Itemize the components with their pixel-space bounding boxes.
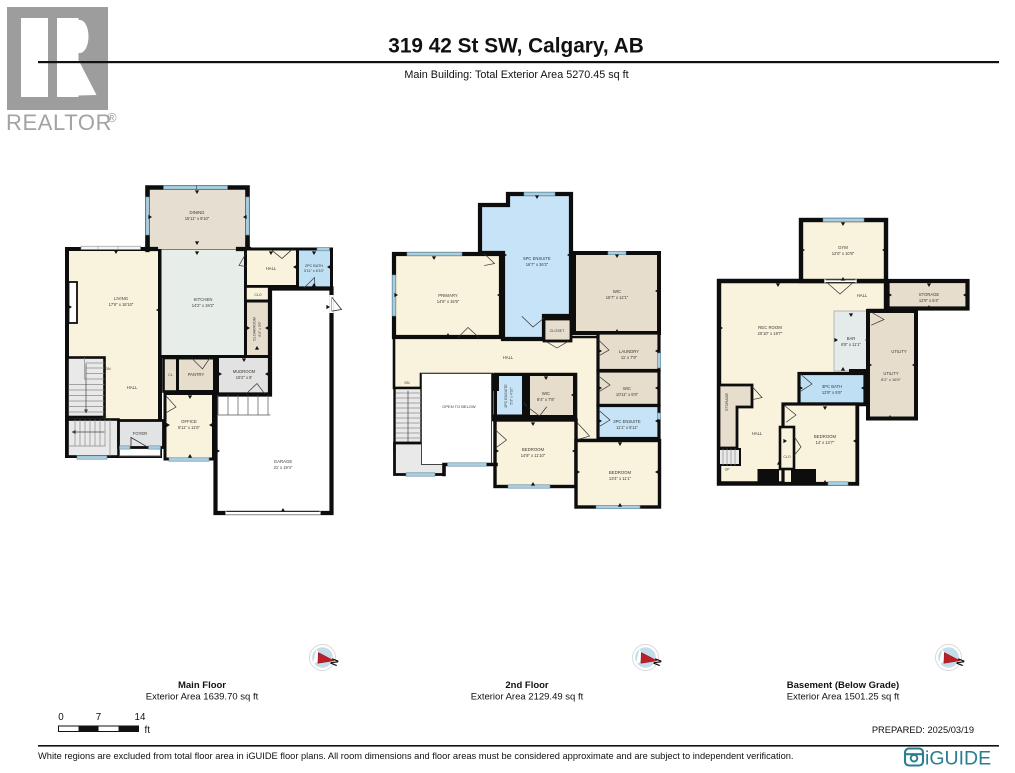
svg-text:STORAGE: STORAGE	[919, 292, 940, 297]
svg-text:DN: DN	[105, 367, 111, 371]
svg-text:8'2" x 16'9": 8'2" x 16'9"	[881, 377, 901, 382]
svg-text:10'11" x 5'9": 10'11" x 5'9"	[616, 392, 639, 397]
svg-text:HALL: HALL	[266, 266, 277, 271]
svg-text:5'3" x 4'10": 5'3" x 4'10"	[510, 387, 514, 405]
svg-text:5'11" x 6'10": 5'11" x 6'10"	[304, 269, 325, 273]
svg-text:DINING: DINING	[189, 210, 205, 215]
svg-text:14'9" x 11'10": 14'9" x 11'10"	[521, 453, 546, 458]
svg-text:12'9" x 5'4": 12'9" x 5'4"	[919, 298, 940, 303]
svg-text:10'2" x 8': 10'2" x 8'	[236, 375, 253, 380]
svg-text:14: 14	[135, 712, 146, 723]
svg-text:7: 7	[96, 712, 101, 723]
svg-text:iGUIDE: iGUIDE	[925, 748, 991, 769]
svg-text:17'6" x 18'10": 17'6" x 18'10"	[109, 302, 134, 307]
svg-text:STORAGE: STORAGE	[725, 392, 729, 411]
svg-text:OFFICE: OFFICE	[181, 419, 197, 424]
svg-text:12'0" x 10'8": 12'0" x 10'8"	[832, 251, 855, 256]
svg-text:Main Building: Total Exterior: Main Building: Total Exterior Area 5270.…	[404, 69, 628, 81]
svg-text:LIVING: LIVING	[114, 296, 129, 301]
svg-text:WIC: WIC	[542, 391, 550, 396]
svg-text:HALL: HALL	[857, 293, 868, 298]
svg-text:BAR: BAR	[847, 336, 856, 341]
svg-text:14'2" x 19'2": 14'2" x 19'2"	[192, 303, 215, 308]
svg-text:REALTOR: REALTOR	[6, 110, 112, 135]
svg-text:GYM: GYM	[838, 245, 848, 250]
svg-text:8'11" x 11'6": 8'11" x 11'6"	[178, 425, 200, 430]
svg-text:0: 0	[58, 712, 64, 723]
svg-text:PRIMARY: PRIMARY	[438, 293, 458, 298]
svg-text:Main Floor: Main Floor	[178, 680, 226, 691]
svg-text:12'9" x 5'6": 12'9" x 5'6"	[822, 390, 843, 395]
svg-text:15'7" x 12'1": 15'7" x 12'1"	[606, 295, 629, 300]
svg-text:PREPARED: 2025/03/19: PREPARED: 2025/03/19	[872, 725, 974, 735]
svg-text:14'6" x 15'5": 14'6" x 15'5"	[437, 299, 460, 304]
svg-text:ft: ft	[145, 725, 151, 736]
svg-text:BEDROOM: BEDROOM	[609, 470, 632, 475]
svg-text:CLO: CLO	[783, 455, 790, 459]
svg-text:REC ROOM: REC ROOM	[758, 325, 782, 330]
svg-text:GARAGE: GARAGE	[274, 459, 293, 464]
svg-text:319 42 St SW, Calgary, AB: 319 42 St SW, Calgary, AB	[388, 35, 643, 58]
svg-text:3PC ENSUITE: 3PC ENSUITE	[613, 419, 641, 424]
svg-text:UTILITY: UTILITY	[891, 349, 907, 354]
svg-text:KITCHEN: KITCHEN	[194, 297, 213, 302]
svg-text:13'4" x 11'1": 13'4" x 11'1"	[609, 476, 632, 481]
svg-text:OPEN TO BELOW: OPEN TO BELOW	[442, 404, 476, 409]
svg-text:UTILITY: UTILITY	[883, 371, 899, 376]
svg-text:White regions are excluded fro: White regions are excluded from total fl…	[38, 751, 794, 761]
svg-text:FOYER: FOYER	[133, 431, 147, 436]
svg-text:HALL: HALL	[752, 431, 763, 436]
svg-text:2nd Floor: 2nd Floor	[505, 680, 549, 691]
svg-text:16'7" x 26'2": 16'7" x 26'2"	[526, 262, 549, 267]
svg-text:21' x 19'4": 21' x 19'4"	[274, 465, 293, 470]
svg-text:BEDROOM: BEDROOM	[522, 447, 545, 452]
svg-text:20'10" x 18'7": 20'10" x 18'7"	[758, 331, 783, 336]
svg-text:HALL: HALL	[503, 355, 514, 360]
svg-text:5PC ENSUITE: 5PC ENSUITE	[523, 256, 551, 261]
svg-text:®: ®	[107, 110, 117, 125]
svg-text:HALL: HALL	[127, 385, 138, 390]
svg-text:PANTRY: PANTRY	[188, 372, 205, 377]
svg-text:Exterior Area 2129.49 sq ft: Exterior Area 2129.49 sq ft	[471, 692, 584, 703]
svg-text:Exterior Area 1501.25 sq ft: Exterior Area 1501.25 sq ft	[787, 692, 900, 703]
svg-text:Basement (Below Grade): Basement (Below Grade)	[787, 680, 899, 691]
svg-text:2PC ENSUITE: 2PC ENSUITE	[504, 384, 508, 408]
svg-text:WIC: WIC	[613, 289, 621, 294]
svg-text:11'1" x 5'11": 11'1" x 5'11"	[616, 425, 638, 430]
svg-text:UP: UP	[725, 468, 731, 472]
svg-text:UP: UP	[102, 415, 108, 419]
svg-text:CLOSET: CLOSET	[550, 329, 566, 333]
svg-text:2PC BATH: 2PC BATH	[305, 264, 324, 268]
svg-text:DN: DN	[404, 381, 410, 385]
svg-text:6'4" x 3'9": 6'4" x 3'9"	[258, 321, 262, 337]
svg-text:Exterior Area 1639.70 sq ft: Exterior Area 1639.70 sq ft	[146, 692, 259, 703]
svg-text:BEDROOM: BEDROOM	[814, 434, 837, 439]
svg-text:6'8" x 11'1": 6'8" x 11'1"	[841, 342, 861, 347]
svg-text:CLOAKROOM: CLOAKROOM	[253, 317, 257, 341]
svg-text:MUDROOM: MUDROOM	[233, 369, 256, 374]
svg-text:LAUNDRY: LAUNDRY	[619, 349, 639, 354]
svg-text:3PC BATH: 3PC BATH	[822, 384, 842, 389]
svg-text:14' x 13'7": 14' x 13'7"	[816, 440, 835, 445]
svg-text:15'11" x 9'10": 15'11" x 9'10"	[185, 216, 210, 221]
svg-text:CLO: CLO	[254, 293, 261, 297]
svg-text:WIC: WIC	[623, 386, 631, 391]
svg-text:8'4" x 7'8": 8'4" x 7'8"	[537, 397, 555, 402]
svg-text:11' x 7'9": 11' x 7'9"	[621, 355, 638, 360]
svg-text:CL: CL	[168, 373, 173, 377]
